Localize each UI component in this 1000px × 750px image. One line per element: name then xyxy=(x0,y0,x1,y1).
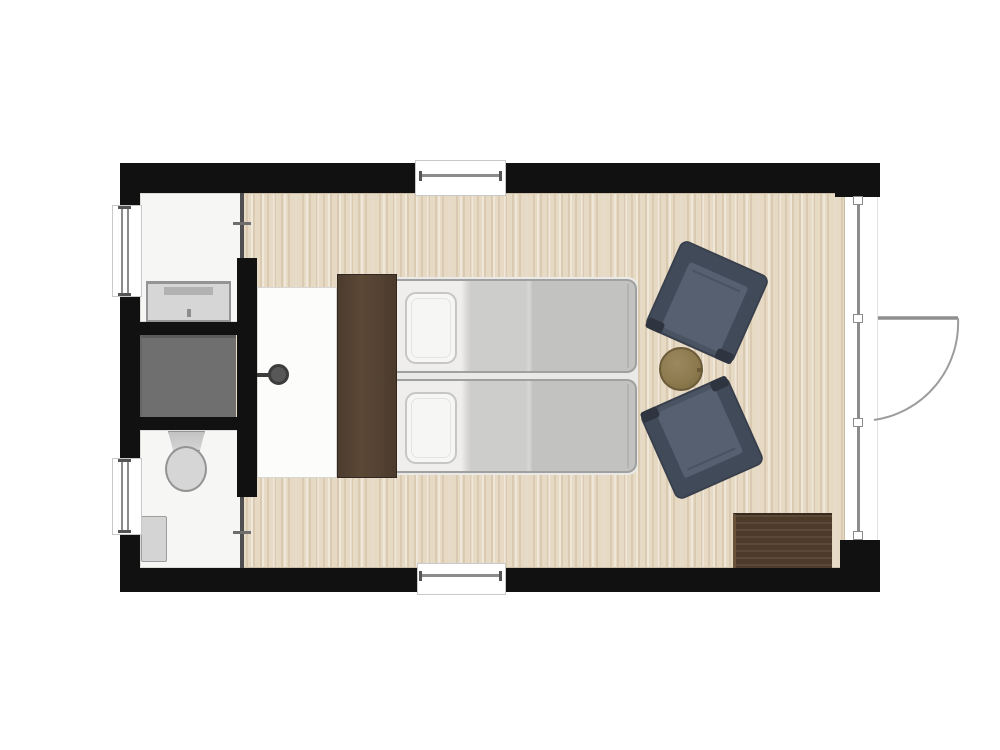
window-end-tick xyxy=(499,571,502,581)
glass-joint xyxy=(853,196,863,205)
wall-corner-top-right xyxy=(835,163,880,197)
entry-door xyxy=(862,308,982,433)
bed-headboard xyxy=(337,274,397,478)
wc-cabinet xyxy=(141,516,167,562)
glass-facade-line xyxy=(857,199,860,537)
window-bottom xyxy=(417,563,506,595)
washbasin xyxy=(146,281,231,322)
wall-corner-bottom-right xyxy=(840,540,880,592)
window-glass xyxy=(121,208,123,294)
window-glass xyxy=(127,461,129,532)
shower-stall xyxy=(140,335,236,417)
window-top-glass xyxy=(421,174,500,177)
bathroom-divider-wall xyxy=(237,258,257,497)
pillow-stitch xyxy=(411,298,451,358)
pillow-stitch xyxy=(411,398,451,458)
bed-foot-line xyxy=(627,284,629,368)
window-end-tick xyxy=(118,206,131,209)
round-side-table xyxy=(659,347,703,391)
pillow-lower xyxy=(405,392,457,464)
washroom-partition xyxy=(240,193,244,258)
floor-plan-page xyxy=(0,0,1000,750)
window-end-tick xyxy=(419,171,422,181)
drain xyxy=(187,309,191,317)
faucet xyxy=(164,287,213,295)
twin-bed-upper xyxy=(397,279,637,373)
wc-partition-tick xyxy=(233,531,251,534)
pillow-upper xyxy=(405,292,457,364)
window-end-tick xyxy=(118,293,131,296)
door-swing-arc xyxy=(874,318,958,420)
window-top xyxy=(415,160,506,196)
washroom-partition-tick xyxy=(233,222,251,225)
bedside-rug xyxy=(257,287,337,478)
window-glass xyxy=(121,461,123,532)
window-bottom-glass xyxy=(421,574,500,577)
wall-knob xyxy=(268,364,289,385)
window-end-tick xyxy=(118,530,131,533)
bed-foot-line xyxy=(627,384,629,468)
twin-bed-lower xyxy=(397,379,637,473)
table-notch xyxy=(697,368,703,372)
window-glass xyxy=(127,208,129,294)
window-end-tick xyxy=(499,171,502,181)
toilet-bowl xyxy=(165,446,207,492)
window-end-tick xyxy=(118,459,131,462)
glass-joint xyxy=(853,531,863,540)
window-end-tick xyxy=(419,571,422,581)
door-mat xyxy=(733,513,832,568)
